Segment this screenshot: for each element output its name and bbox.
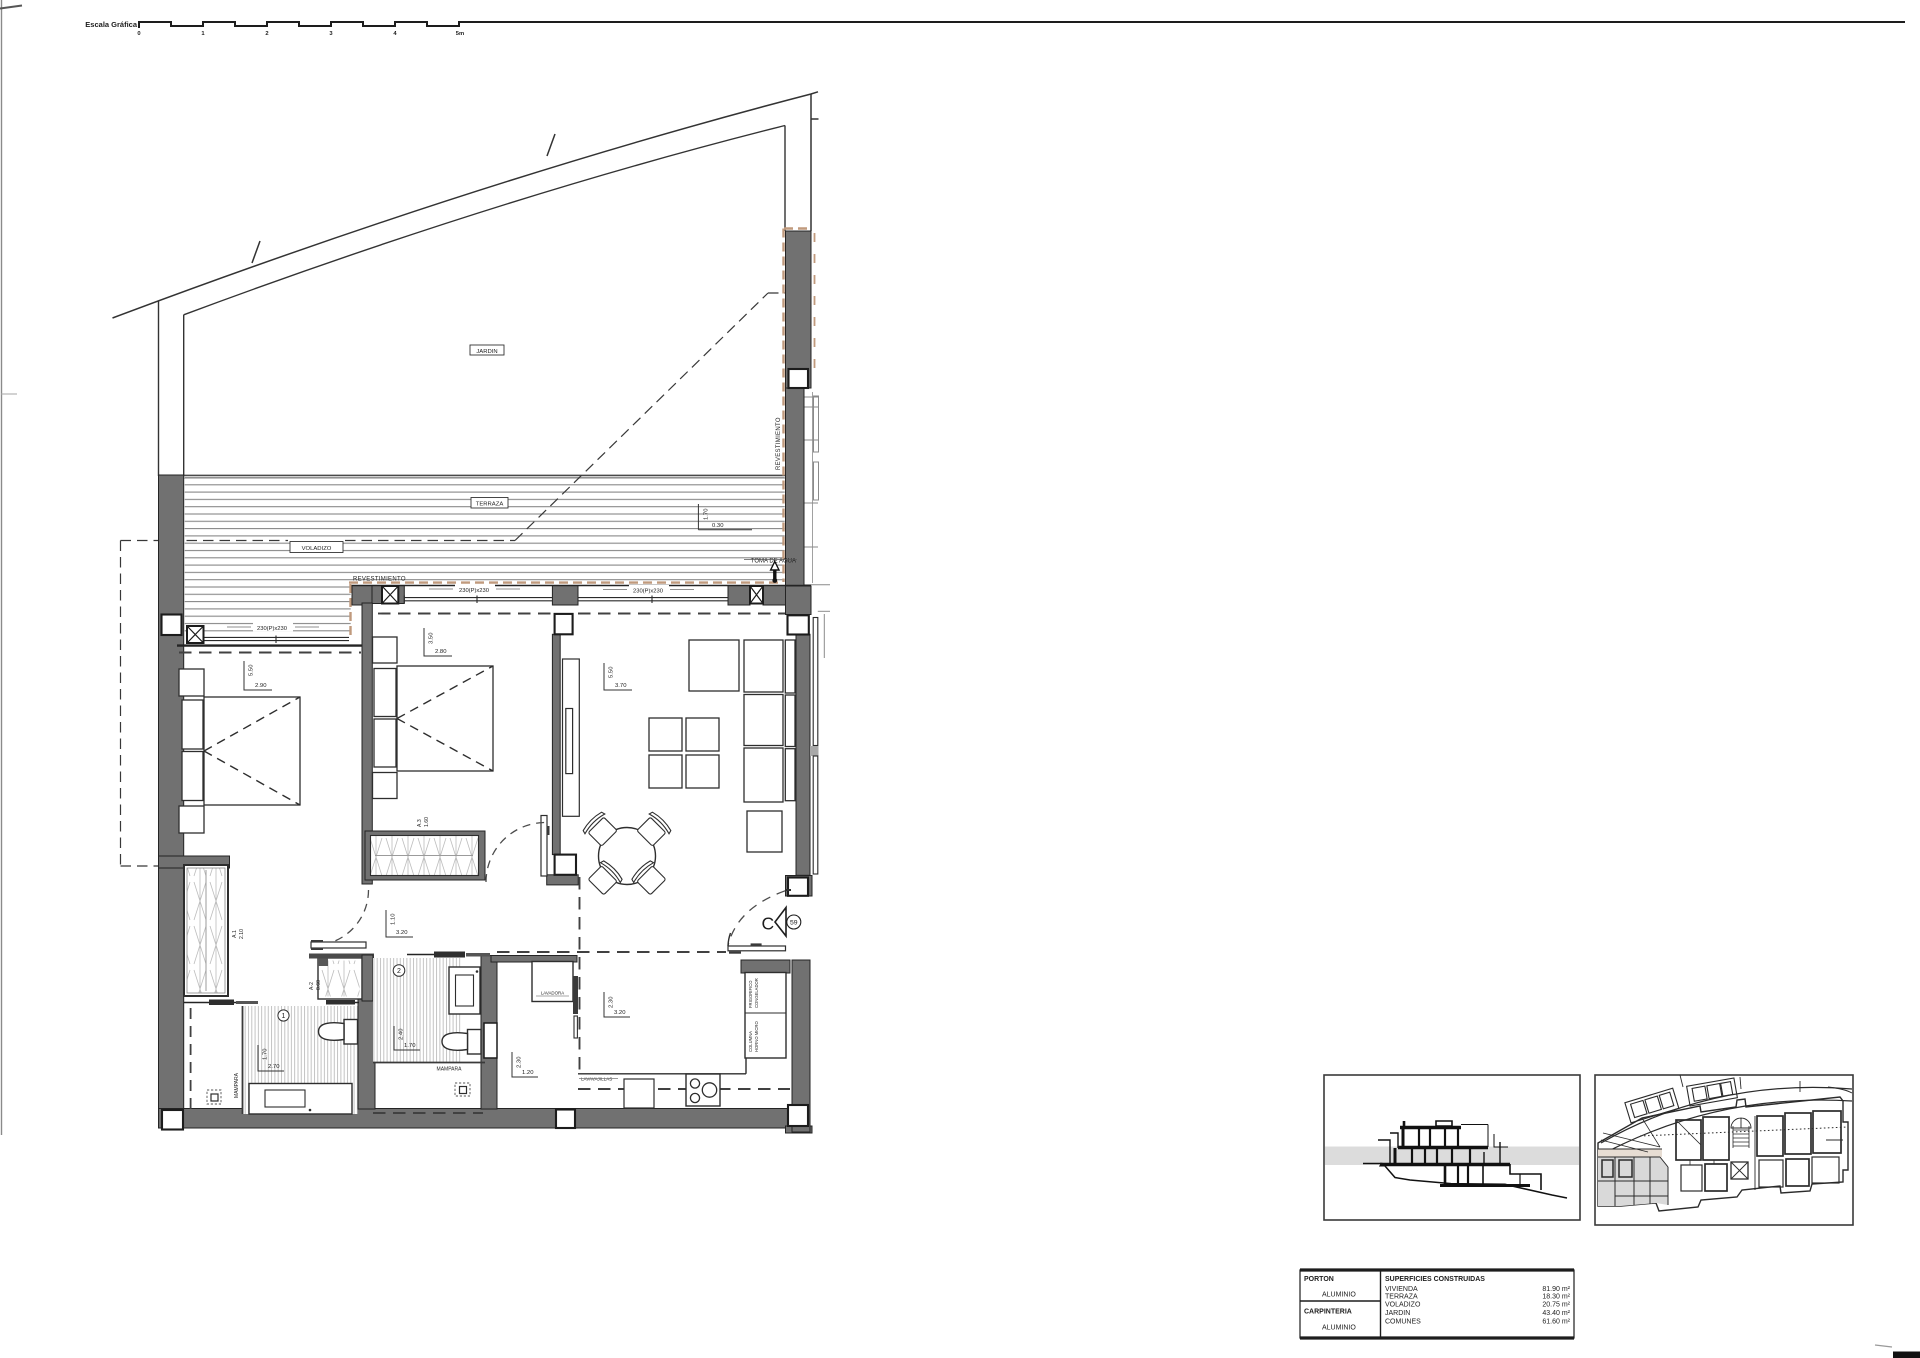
svg-text:TERRAZA: TERRAZA: [1385, 1294, 1418, 1301]
svg-text:61.60 m²: 61.60 m²: [1542, 1319, 1570, 1326]
svg-text:Escala Gráfica: Escala Gráfica: [85, 20, 138, 29]
svg-text:A.3: A.3: [417, 819, 423, 827]
svg-text:1.20: 1.20: [522, 1070, 534, 1076]
svg-text:2: 2: [397, 968, 401, 975]
svg-text:1.70: 1.70: [404, 1043, 416, 1049]
svg-text:0.60: 0.60: [316, 980, 322, 990]
svg-text:A-2: A-2: [309, 982, 315, 990]
svg-text:3.20: 3.20: [396, 930, 408, 936]
svg-text:230(P)x230: 230(P)x230: [257, 626, 287, 632]
svg-text:VOLADIZO: VOLADIZO: [302, 546, 332, 552]
svg-text:A.1: A.1: [232, 930, 238, 938]
svg-text:5.50: 5.50: [249, 664, 255, 676]
svg-text:ALUMINIO: ALUMINIO: [1322, 1292, 1356, 1299]
svg-text:230(P)x230: 230(P)x230: [459, 588, 489, 594]
svg-text:1.10: 1.10: [391, 913, 397, 925]
svg-text:1.70: 1.70: [704, 508, 710, 520]
svg-text:JARDIN: JARDIN: [1385, 1310, 1410, 1317]
svg-text:HORNO MICRO: HORNO MICRO: [754, 1021, 759, 1052]
svg-text:43.40 m²: 43.40 m²: [1542, 1310, 1570, 1317]
svg-text:3.70: 3.70: [615, 683, 627, 689]
svg-text:5.50: 5.50: [609, 666, 615, 678]
svg-text:230(P)x230: 230(P)x230: [633, 588, 663, 594]
svg-text:MAMPARA: MAMPARA: [437, 1067, 463, 1073]
svg-text:LAVAVAJILLAS: LAVAVAJILLAS: [581, 1077, 612, 1082]
svg-text:2.10: 2.10: [239, 929, 245, 939]
svg-text:VIVIENDA: VIVIENDA: [1385, 1286, 1418, 1293]
svg-text:PORTON: PORTON: [1304, 1276, 1334, 1283]
svg-text:59: 59: [790, 920, 798, 927]
svg-text:2.80: 2.80: [435, 649, 447, 655]
svg-text:CONGELADOR: CONGELADOR: [754, 978, 759, 1008]
svg-text:20.75 m²: 20.75 m²: [1542, 1302, 1570, 1309]
svg-text:JARDIN: JARDIN: [476, 349, 497, 355]
svg-text:ALUMINIO: ALUMINIO: [1322, 1325, 1356, 1332]
svg-text:FRIGORIFICO: FRIGORIFICO: [748, 980, 753, 1008]
svg-text:18.30 m²: 18.30 m²: [1542, 1294, 1570, 1301]
svg-text:CARPINTERIA: CARPINTERIA: [1304, 1309, 1352, 1316]
svg-text:5m: 5m: [456, 31, 464, 37]
svg-text:1: 1: [282, 1013, 286, 1020]
svg-text:1.70: 1.70: [263, 1048, 269, 1060]
svg-text:REVESTIMIENTO: REVESTIMIENTO: [776, 417, 782, 470]
svg-text:2.40: 2.40: [399, 1028, 405, 1040]
svg-text:2.90: 2.90: [255, 683, 267, 689]
svg-text:1.60: 1.60: [424, 817, 430, 827]
svg-text:2.30: 2.30: [517, 1056, 523, 1068]
svg-text:COLUMNA: COLUMNA: [748, 1031, 753, 1052]
svg-text:C: C: [762, 914, 775, 934]
svg-text:2: 2: [265, 31, 268, 37]
svg-text:3.20: 3.20: [614, 1010, 626, 1016]
svg-text:COMUNES: COMUNES: [1385, 1319, 1421, 1326]
svg-text:LAVADORA: LAVADORA: [541, 991, 564, 996]
svg-text:2.30: 2.30: [609, 996, 615, 1008]
svg-text:0.30: 0.30: [712, 523, 724, 529]
svg-text:TERRAZA: TERRAZA: [476, 502, 504, 508]
svg-text:3.50: 3.50: [429, 632, 435, 644]
svg-text:MAMPARA: MAMPARA: [234, 1072, 240, 1098]
svg-text:2.70: 2.70: [268, 1064, 280, 1070]
svg-text:VOLADIZO: VOLADIZO: [1385, 1302, 1421, 1309]
svg-text:81.90 m²: 81.90 m²: [1542, 1286, 1570, 1293]
svg-text:0: 0: [137, 31, 140, 37]
svg-text:SUPERFICIES CONSTRUIDAS: SUPERFICIES CONSTRUIDAS: [1385, 1276, 1485, 1283]
